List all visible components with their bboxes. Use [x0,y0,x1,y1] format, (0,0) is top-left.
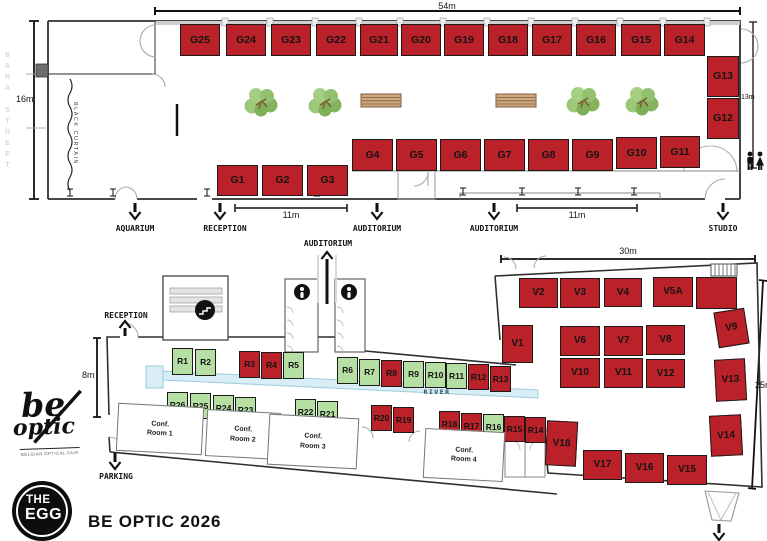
upper-door-arcs [115,25,758,199]
arrow-auditorium-2 [489,203,500,219]
arrow-auditorium-lower [322,252,333,304]
restroom-icon [747,152,764,170]
floor-plan: G25G24G23G22G21G20G19G18G17G16G15G14G13G… [0,0,767,541]
stairs-icon [195,300,215,320]
wall-markers [67,188,637,196]
egg-logo-the: THE [26,494,51,506]
egg-logo-egg: EGG [25,506,62,524]
street-fixture [36,64,48,77]
tree-icon [245,87,659,117]
floor-plan-linework [0,0,767,541]
page-title: BE OPTIC 2026 [88,512,221,532]
exit-ramp [705,491,739,521]
river [146,366,538,398]
black-curtain [68,79,72,191]
bench-icon [361,94,536,107]
small-rooms [505,440,545,477]
arrow-exit-bottom-right [714,524,725,540]
top-wall-band [156,21,740,25]
logo-slash [5,395,93,466]
arrow-parking [110,453,121,469]
arrow-reception-upper [215,203,226,219]
stairs-grille [711,264,737,276]
stairs-room [163,276,228,340]
arrow-auditorium-1 [372,203,383,219]
the-egg-logo: THE EGG [12,481,72,541]
be-optic-logo: be optic BELGIAN OPTICAL FAIR [5,395,93,466]
arrow-studio [718,203,729,219]
arrow-aquarium [130,203,141,219]
